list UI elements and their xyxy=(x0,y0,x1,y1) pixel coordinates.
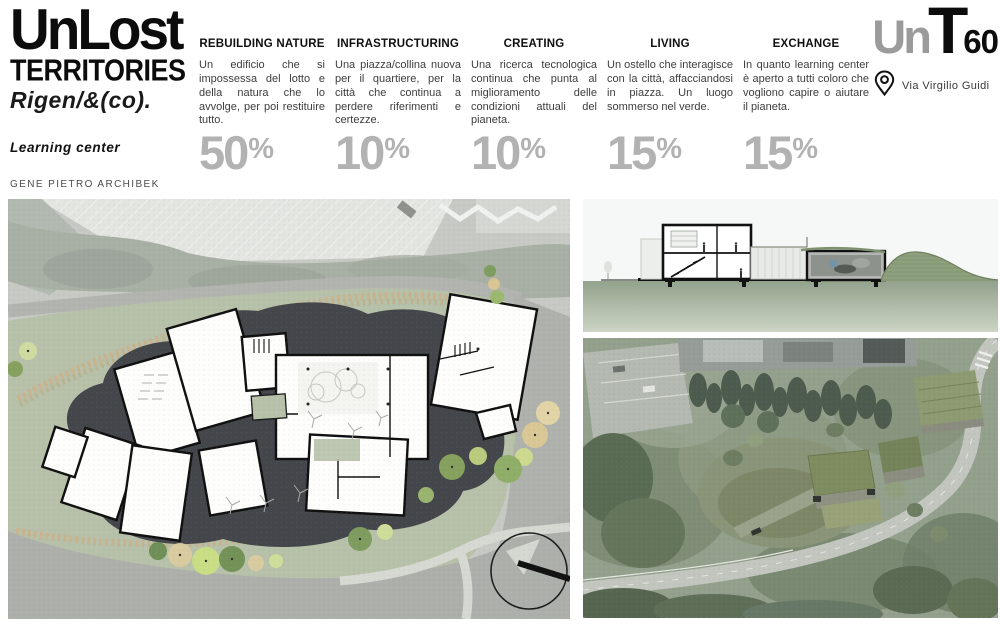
page-title: UnLost xyxy=(10,2,200,57)
logo-address: Via Virgilio Guidi xyxy=(902,80,990,92)
section-right-building xyxy=(801,248,885,287)
logo-t: T xyxy=(928,4,968,57)
project-subtitle: Learning center xyxy=(10,140,200,155)
logo-wordmark: UnT60 xyxy=(860,4,998,64)
column-percent: 10% xyxy=(335,131,461,176)
column-heading: INFRASTRUCTURING xyxy=(335,38,461,50)
percent-value: 10 xyxy=(471,126,519,179)
section-ground xyxy=(583,281,998,332)
column-percent: 10% xyxy=(471,131,597,176)
site-plan-figure xyxy=(8,199,570,619)
column-body: Una ricerca tecnologica continua che pun… xyxy=(471,59,597,129)
percent-value: 15 xyxy=(743,126,791,179)
aerial-photo-figure xyxy=(583,338,998,618)
column-body: Un edificio che si impossessa del lotto … xyxy=(199,59,325,129)
percent-sign: % xyxy=(520,133,546,165)
percent-value: 10 xyxy=(335,126,383,179)
concept-column-creating: CREATING Una ricerca tecnologica continu… xyxy=(471,38,597,176)
title-block: UnLost TERRITORIES Rigen/&(co). Learning… xyxy=(10,2,200,190)
column-heading: LIVING xyxy=(607,38,733,50)
column-percent: 50% xyxy=(199,131,325,176)
column-percent: 15% xyxy=(607,131,733,176)
logo-60: 60 xyxy=(963,23,998,61)
column-heading: REBUILDING NATURE xyxy=(199,38,325,50)
page-title-line3: Rigen/&(co). xyxy=(10,87,200,114)
percent-sign: % xyxy=(384,133,410,165)
author-name: GENE PIETRO ARCHIBEK xyxy=(10,179,200,190)
concept-column-exchange: EXCHANGE In quanto learning center è ape… xyxy=(743,38,869,176)
presentation-board: UnLost TERRITORIES Rigen/&(co). Learning… xyxy=(0,0,1000,625)
column-heading: EXCHANGE xyxy=(743,38,869,50)
logo-un: Un xyxy=(872,9,929,64)
studio-logo: UnT60 Via Virgilio Guidi xyxy=(860,4,998,102)
logo-address-row: Via Virgilio Guidi xyxy=(860,70,998,102)
page-title-line2: TERRITORIES xyxy=(10,56,200,86)
column-body: In quanto learning center è aperto a tut… xyxy=(743,59,869,129)
location-pin-icon xyxy=(874,70,895,102)
column-heading: CREATING xyxy=(471,38,597,50)
column-body: Una piazza/collina nuova per il quartier… xyxy=(335,59,461,129)
percent-value: 50 xyxy=(199,126,247,179)
concept-column-rebuilding-nature: REBUILDING NATURE Un edificio che si imp… xyxy=(199,38,325,176)
percent-sign: % xyxy=(792,133,818,165)
percent-sign: % xyxy=(248,133,274,165)
concept-column-infrastructuring: INFRASTRUCTURING Una piazza/collina nuov… xyxy=(335,38,461,176)
section-drawing-figure xyxy=(583,199,998,332)
percent-value: 15 xyxy=(607,126,655,179)
percent-sign: % xyxy=(656,133,682,165)
concept-columns: REBUILDING NATURE Un edificio che si imp… xyxy=(199,38,869,176)
concept-column-living: LIVING Un ostello che interagisce con la… xyxy=(607,38,733,176)
column-percent: 15% xyxy=(743,131,869,176)
column-body: Un ostello che interagisce con la città,… xyxy=(607,59,733,129)
